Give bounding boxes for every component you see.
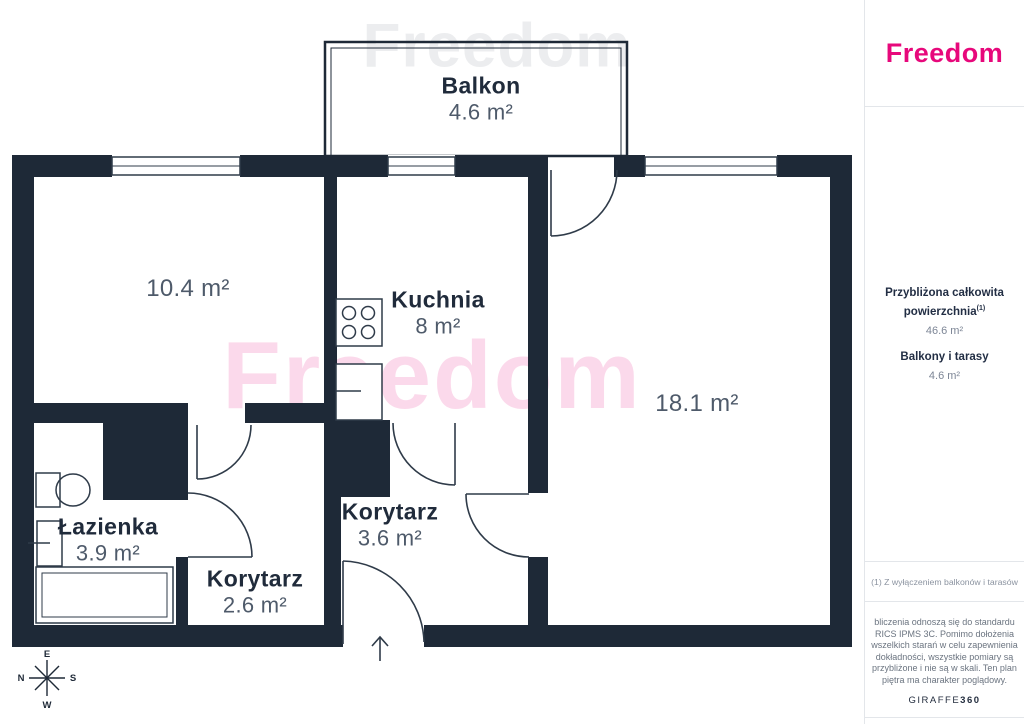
window-room-18-1 xyxy=(645,155,777,177)
sidebar-summary-section: Przybliżona całkowita powierzchnia(1) 46… xyxy=(865,107,1024,562)
room-name: Korytarz xyxy=(207,566,304,593)
door-room-10-4 xyxy=(197,425,251,479)
room-label-10-4: 10.4 m² xyxy=(146,275,229,303)
room-label-18-1: 18.1 m² xyxy=(655,390,738,418)
door-entrance xyxy=(343,561,424,644)
sidebar-footnote: (1) Z wyłączeniem balkonów i tarasów xyxy=(865,562,1024,602)
compass: E N S W xyxy=(18,649,77,711)
disclaimer-line: przybliżone i nie są w skali. Ten plan xyxy=(865,663,1024,675)
toilet-icon xyxy=(36,473,90,507)
window-kuchnia xyxy=(388,155,455,177)
sidebar: Freedom Przybliżona całkowita powierzchn… xyxy=(864,0,1024,724)
balcony-area-value: 4.6 m² xyxy=(929,370,960,382)
room-name: Kuchnia xyxy=(391,287,485,314)
total-area-value: 46.6 m² xyxy=(926,325,963,337)
room-label-kuchnia: Kuchnia 8 m² xyxy=(391,287,485,340)
room-area: 10.4 m² xyxy=(146,275,229,303)
entrance-arrow xyxy=(372,637,388,661)
floorplan-page: Freedom Freedom xyxy=(0,0,1024,724)
stove-icon xyxy=(336,299,382,346)
compass-top-label: E xyxy=(44,649,50,660)
room-label-korytarz-a: Korytarz 3.6 m² xyxy=(342,499,439,552)
room-label-balkon: Balkon 4.6 m² xyxy=(441,73,520,126)
room-area: 3.9 m² xyxy=(58,541,158,567)
room-name: Balkon xyxy=(441,73,520,100)
door-lazienka xyxy=(188,493,252,557)
sidebar-logo-section: Freedom xyxy=(865,0,1024,107)
disclaimer-line: piętra ma charakter poglądowy. xyxy=(865,675,1024,687)
room-name: Korytarz xyxy=(342,499,439,526)
room-name: Łazienka xyxy=(58,514,158,541)
footnote-text: (1) Z wyłączeniem balkonów i tarasów xyxy=(871,577,1018,587)
windows xyxy=(112,155,777,177)
compass-right-label: S xyxy=(70,673,76,684)
disclaimer-line: dokładności, wszystkie pomiary są xyxy=(865,652,1024,664)
window-room-10-4 xyxy=(112,155,240,177)
sidebar-disclaimer-section: bliczenia odnoszą się do standardu RICS … xyxy=(865,602,1024,718)
room-label-lazienka: Łazienka 3.9 m² xyxy=(58,514,158,567)
total-area-superscript: (1) xyxy=(977,305,986,312)
room-label-korytarz-b: Korytarz 2.6 m² xyxy=(207,566,304,619)
total-area-label: Przybliżona całkowita powierzchnia(1) xyxy=(885,286,1004,320)
room-area: 18.1 m² xyxy=(655,390,738,418)
compass-left-label: N xyxy=(18,673,25,684)
freedom-logo: Freedom xyxy=(886,38,1004,69)
giraffe360-logo-normal: GIRAFFE xyxy=(908,695,960,706)
giraffe360-logo: GIRAFFE360 xyxy=(865,695,1024,706)
room-area: 8 m² xyxy=(391,314,485,340)
door-kuchnia xyxy=(393,423,455,485)
room-area: 3.6 m² xyxy=(342,526,439,552)
disclaimer-line: RICS IPMS 3C. Pomimo dołożenia xyxy=(865,629,1024,641)
room-area: 4.6 m² xyxy=(441,100,520,126)
compass-bottom-label: W xyxy=(43,700,52,711)
total-area-label-line2: powierzchnia xyxy=(904,306,977,318)
door-room-18-1 xyxy=(466,494,529,557)
bathtub-icon xyxy=(36,567,173,623)
disclaimer-line: bliczenia odnoszą się do standardu xyxy=(865,617,1024,629)
room-area: 2.6 m² xyxy=(207,593,304,619)
disclaimer-line: wszelkich starań w celu zapewnienia xyxy=(865,640,1024,652)
giraffe360-logo-bold: 360 xyxy=(960,695,980,706)
kitchen-sink-icon xyxy=(336,364,382,420)
total-area-label-line1: Przybliżona całkowita xyxy=(885,287,1004,299)
door-balcony xyxy=(551,170,617,236)
balcony-area-label: Balkony i tarasy xyxy=(900,350,988,365)
